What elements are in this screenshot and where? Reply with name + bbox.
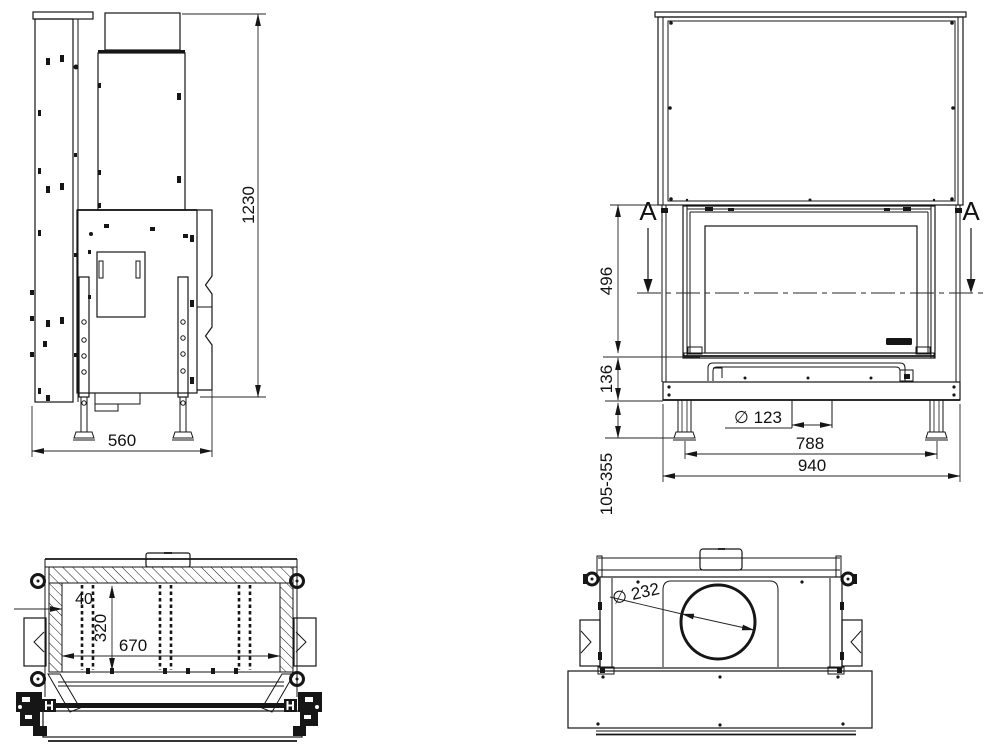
dim-air-inlet-label: ∅ 123 — [734, 408, 782, 427]
dim-inner-depth-label: 320 — [91, 614, 110, 642]
dim-door-height-label: 496 — [597, 267, 616, 295]
dim-depth-label: 560 — [108, 431, 136, 450]
dim-leg-spacing-label: 788 — [796, 434, 824, 453]
dim-base-height-label: 136 — [597, 365, 616, 393]
technical-drawing-page: 560 1230 — [0, 0, 1003, 747]
dim-total-height-label: 1230 — [239, 186, 258, 224]
drawing-background — [0, 0, 1003, 747]
technical-drawing: 560 1230 — [0, 0, 1003, 747]
dim-wall-thickness-label: 40 — [75, 591, 93, 608]
top-wall-hatch — [49, 567, 293, 583]
section-label-left: A — [639, 196, 657, 226]
section-label-right: A — [962, 196, 980, 226]
dim-inner-width-label: 670 — [119, 636, 147, 655]
dim-leg-range-label: 105-355 — [597, 453, 616, 515]
dim-overall-width-label: 940 — [798, 456, 826, 475]
right-wall-hatch — [280, 583, 293, 672]
left-wall-hatch — [49, 583, 62, 672]
brand-logo — [886, 338, 912, 345]
